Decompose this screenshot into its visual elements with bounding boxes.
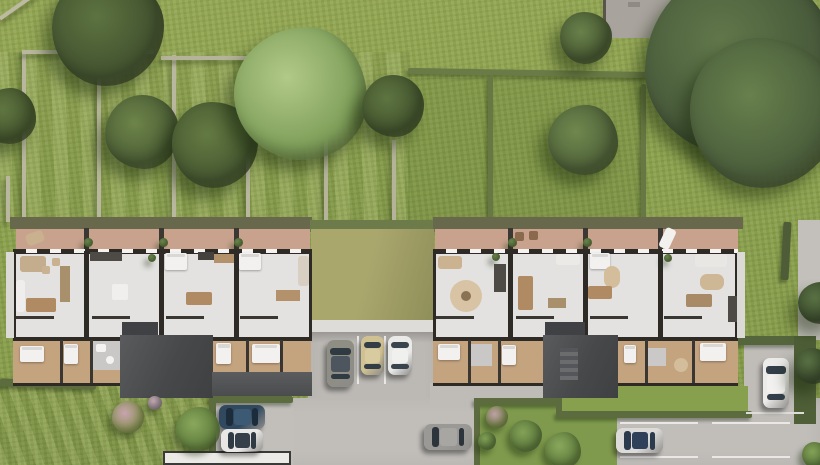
inner-wall <box>664 316 702 319</box>
bed <box>239 253 261 270</box>
garden-bush-small <box>478 432 496 450</box>
dining-table <box>588 286 612 299</box>
bed-pillow <box>22 347 41 350</box>
round-table <box>461 291 471 301</box>
left-building-east-roof <box>212 372 312 396</box>
dining-table <box>686 294 712 307</box>
sofa <box>16 280 25 312</box>
room-partition <box>468 340 471 383</box>
car-white-right-pad-glass <box>767 394 786 400</box>
hedge-strip-above-right-building <box>433 217 743 229</box>
bed <box>216 343 231 364</box>
hedge-vertical-right-2 <box>641 84 646 222</box>
car-white-right-pad-glass <box>766 366 786 374</box>
rug <box>700 274 724 290</box>
bed <box>165 253 187 270</box>
car-white-central-glass <box>391 364 408 369</box>
bed <box>64 344 78 364</box>
inner-wall <box>240 316 278 319</box>
inner-wall <box>16 316 54 319</box>
right-unit-divider-3 <box>658 251 663 340</box>
car-gray-bottom <box>424 424 472 450</box>
kitchen-island <box>276 290 300 301</box>
neighbor-roof-vent <box>628 2 640 7</box>
car-blue-glass <box>226 408 233 426</box>
car-white-central <box>388 336 412 375</box>
bed <box>624 345 636 363</box>
inner-wall <box>590 316 628 319</box>
inner-wall <box>92 316 130 319</box>
bed-pillow <box>218 344 230 347</box>
car-tan <box>361 336 384 375</box>
parking-line <box>384 336 386 384</box>
deck-plant <box>234 238 243 247</box>
right-building-lower-wall <box>433 383 543 386</box>
hedge-left-pad-top <box>209 396 293 403</box>
kitchen-island <box>60 266 70 302</box>
wardrobe <box>198 252 214 260</box>
table <box>112 284 128 300</box>
room-partition <box>692 340 695 383</box>
bed-pillow <box>703 344 724 347</box>
bed-pillow <box>592 254 608 257</box>
round-rug <box>674 358 688 372</box>
stone-wall-diagonal-corner <box>0 0 37 20</box>
dining-table <box>26 298 56 312</box>
left-unit-divider-1 <box>84 251 89 340</box>
car-white-central-glass <box>391 342 409 348</box>
car-suv-gray <box>327 340 354 387</box>
hedge-horizontal-right-gardens <box>408 68 660 78</box>
car-white-left-pad-glass <box>228 432 234 449</box>
left-unit-divider-2 <box>159 251 164 340</box>
stone-wall-vertical-6 <box>392 140 396 222</box>
inner-wall <box>166 316 204 319</box>
car-white-left-pad-glass <box>251 432 256 449</box>
car-tan-glass <box>364 364 381 369</box>
stairs <box>560 348 578 380</box>
bed-pillow <box>625 346 635 349</box>
inner-wall <box>516 316 554 319</box>
garden-bush-flowering <box>486 406 508 428</box>
sofa <box>695 254 727 267</box>
car-silver-bottom-right-roof <box>632 432 649 449</box>
rear-lawn-hedge-bottom <box>556 411 752 418</box>
garage-roof-structure <box>163 451 291 465</box>
courtyard-lawn <box>311 229 434 325</box>
kitchen-island <box>548 298 566 308</box>
bush-bottom-right-corner <box>802 442 820 465</box>
parking-line <box>357 336 359 384</box>
dining-table <box>186 292 212 305</box>
dining-table <box>518 276 533 310</box>
car-blue <box>219 405 265 429</box>
left-building-side-terrace <box>6 252 14 338</box>
car-suv-gray-roof <box>331 356 349 373</box>
left-building-lower-wall <box>13 383 120 386</box>
car-blue-glass <box>252 408 258 425</box>
tree-by-neighbor-roof <box>560 12 612 64</box>
garden-patch-hedge-left <box>474 398 480 465</box>
sofa <box>298 256 309 286</box>
kitchen-counter <box>728 296 737 322</box>
bed-pillow <box>255 345 277 348</box>
bed-pillow <box>241 254 259 257</box>
garden-bush-large <box>545 432 581 465</box>
bed <box>502 345 516 365</box>
tree-garden-right <box>362 75 424 137</box>
car-white-left-pad-roof <box>235 433 250 449</box>
deck-plant <box>159 238 168 247</box>
bed-pillow <box>167 254 185 257</box>
car-gray-bottom-roof <box>440 428 457 446</box>
car-silver-bottom-right-glass <box>624 431 631 450</box>
bed <box>20 346 44 362</box>
inner-wall <box>436 316 474 319</box>
car-tan-glass <box>364 342 381 348</box>
bed-pillow <box>503 346 514 349</box>
car-white-right-pad <box>763 358 789 408</box>
bed <box>252 344 280 363</box>
car-suv-gray-glass <box>330 348 351 355</box>
parking-line <box>712 456 790 458</box>
room-partition <box>90 340 93 383</box>
car-suv-gray-glass <box>331 374 350 380</box>
deck-plant <box>583 238 592 247</box>
right-building-side-terrace <box>737 252 745 338</box>
parking-line <box>746 412 804 414</box>
hedge-vertical-right-1 <box>488 76 493 222</box>
bath-fixture <box>106 356 114 364</box>
sofa <box>556 254 580 265</box>
bed-pillow <box>65 345 76 348</box>
bathroom-floor <box>470 344 492 366</box>
kitchen-counter <box>214 254 234 263</box>
left-building-canopy-roof <box>120 335 213 398</box>
tree-large-light <box>234 27 367 160</box>
stone-wall-left-short <box>6 176 10 222</box>
parking-line <box>620 456 698 458</box>
deck-chair <box>529 231 538 240</box>
courtyard-curb <box>304 320 440 332</box>
bathroom-floor <box>648 348 666 366</box>
car-white-central-roof <box>392 349 408 363</box>
armchair <box>52 258 60 266</box>
flowering-bush-pink <box>112 401 144 433</box>
bed-pillow <box>440 345 458 348</box>
bed <box>700 343 726 361</box>
kitchen-counter <box>90 252 122 261</box>
car-tan-roof <box>365 349 381 363</box>
bath-fixture <box>96 344 106 352</box>
hedge-right-boundary-wall <box>780 222 791 280</box>
room-partition <box>498 340 501 383</box>
indoor-plant <box>664 254 672 262</box>
car-gray-bottom-glass <box>432 427 439 447</box>
parking-line <box>620 422 698 424</box>
car-white-left-pad <box>221 429 263 452</box>
round-bush-green <box>176 407 220 451</box>
room-partition <box>645 340 648 383</box>
car-blue-roof <box>234 409 251 425</box>
tree-garden-far-right <box>548 105 618 175</box>
parking-line <box>712 422 790 424</box>
deck-chair <box>515 232 524 241</box>
car-white-right-pad-roof <box>767 375 785 393</box>
site-plan-rendering <box>0 0 820 465</box>
tree-garden-mid-1 <box>105 95 179 169</box>
car-silver-bottom-right <box>616 428 663 453</box>
right-unit-divider-1 <box>508 251 513 340</box>
right-building-lower-wall-east <box>618 383 738 386</box>
tree-top-right-mass-2 <box>690 38 820 188</box>
car-gray-bottom-glass <box>459 428 465 447</box>
sofa <box>438 256 462 269</box>
room-partition <box>60 340 63 383</box>
kitchen-counter <box>494 264 506 292</box>
rug <box>604 266 620 288</box>
armchair <box>42 266 50 274</box>
right-building-canopy-roof <box>543 335 618 398</box>
car-silver-bottom-right-glass <box>650 432 656 450</box>
bed <box>438 344 460 360</box>
